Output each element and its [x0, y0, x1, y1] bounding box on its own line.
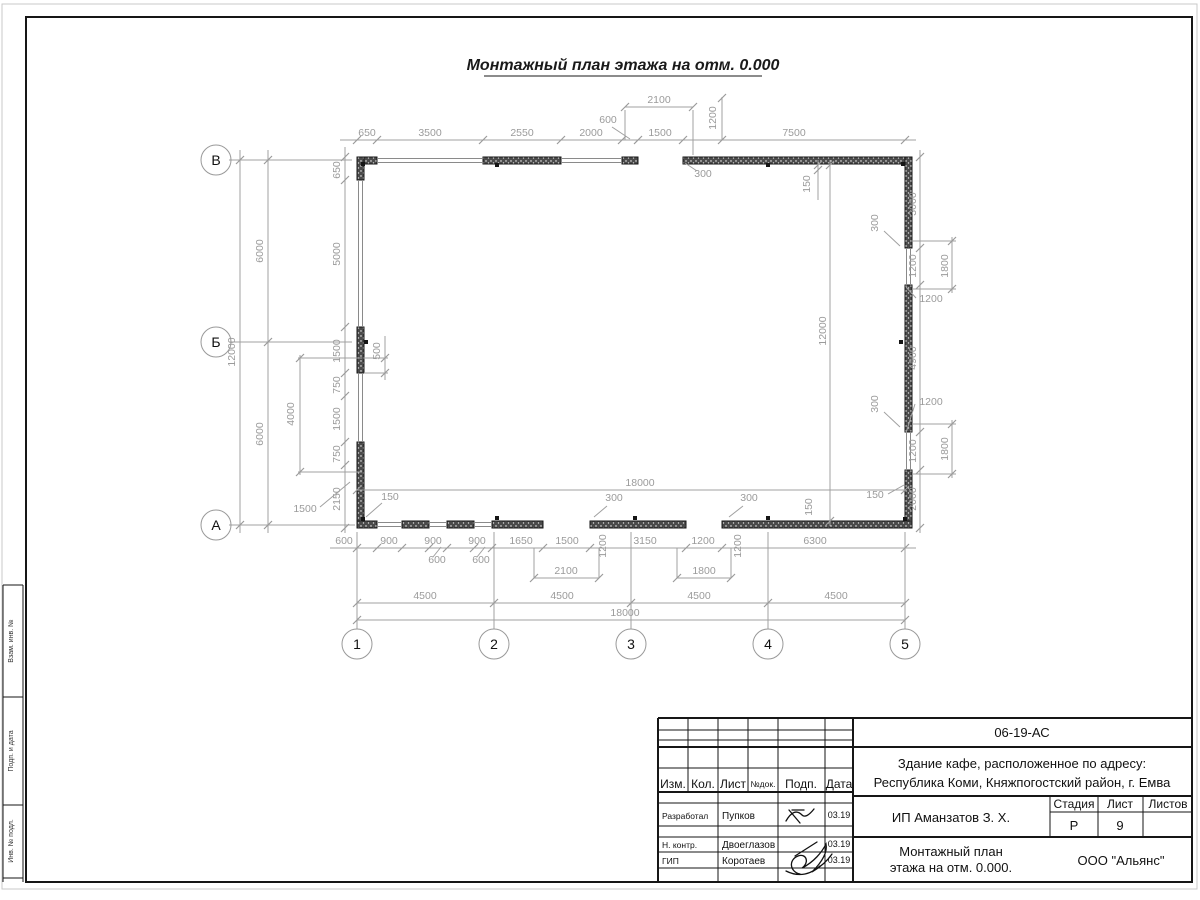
- dimension-label: 1800: [692, 565, 716, 577]
- dimension-label: 7500: [782, 127, 806, 139]
- dimension-label: 1200: [597, 534, 609, 558]
- dimension-label: 500: [371, 342, 383, 360]
- name-gip: Коротаев: [722, 856, 765, 867]
- project-name-line1: Здание кафе, расположенное по адресу:: [898, 756, 1146, 771]
- dimension-label: 900: [380, 535, 398, 547]
- dimension-label: 3000: [907, 192, 919, 216]
- signature-developer: [786, 809, 814, 823]
- stage-label: Стадия: [1054, 797, 1095, 811]
- dimension-label: 1500: [293, 503, 317, 515]
- dimension-label: 900: [468, 535, 486, 547]
- dimension-label: 1200: [907, 254, 919, 278]
- dimension-label: 1650: [509, 535, 533, 547]
- dimension-label: 600: [335, 535, 353, 547]
- date-gip: 03.19: [828, 855, 851, 865]
- dimension-label: 4500: [687, 590, 711, 602]
- side-stamp-label: Инв. № подл.: [8, 819, 15, 863]
- dimension-label: 6300: [803, 535, 827, 547]
- title-block: 06-19-АС Здание кафе, расположенное по а…: [658, 718, 1192, 882]
- axis-label-row: В: [211, 152, 220, 168]
- dimension-label: 1500: [331, 407, 343, 431]
- doc-number: 06-19-АС: [994, 725, 1049, 740]
- col-podp: Подп.: [785, 777, 817, 791]
- drawing-frame: [26, 17, 1192, 882]
- dimension-label: 2000: [907, 487, 919, 511]
- col-kol: Кол.: [691, 777, 715, 791]
- dimension-label: 150: [866, 489, 884, 501]
- dimension-label: 300: [869, 214, 881, 232]
- side-stamp: Взам. инв. № Подп. и дата Инв. № подл.: [3, 585, 23, 882]
- axis-label-col: 5: [901, 636, 909, 652]
- role-gip: ГИП: [662, 856, 679, 866]
- drawing-name-line2: этажа на отм. 0.000.: [890, 860, 1012, 875]
- dimension-label: 650: [358, 127, 376, 139]
- name-developer: Пупков: [722, 811, 755, 822]
- dimension-label: 1200: [732, 534, 744, 558]
- stage-value: Р: [1070, 818, 1079, 833]
- dimension-label: 1200: [907, 439, 919, 463]
- dimension-label: 4000: [285, 402, 297, 426]
- col-ndok: №док.: [751, 779, 776, 789]
- dimension-label: 1500: [555, 535, 579, 547]
- dimension-label: 1500: [331, 339, 343, 363]
- sheets-label: Листов: [1149, 797, 1188, 811]
- sheet-number: 9: [1116, 818, 1123, 833]
- dimension-label: 300: [694, 168, 712, 180]
- dimension-label: 2000: [579, 127, 603, 139]
- dimension-label: 650: [331, 161, 343, 179]
- dimension-label: 750: [331, 376, 343, 394]
- axis-label-col: 2: [490, 636, 498, 652]
- drawing-name-line1: Монтажный план: [899, 844, 1003, 859]
- role-developer: Разработал: [662, 811, 708, 821]
- dimension-label: 2100: [554, 565, 578, 577]
- project-name-line2: Республика Коми, Княжпогостский район, г…: [874, 775, 1171, 790]
- dimension-label: 6000: [254, 422, 266, 446]
- dimension-label: 5000: [331, 242, 343, 266]
- dimension-label: 2550: [510, 127, 534, 139]
- axis-label-row: А: [211, 517, 221, 533]
- dimension-label: 300: [869, 395, 881, 413]
- dimension-label: 900: [424, 535, 442, 547]
- date-ncontrol: 03.19: [828, 839, 851, 849]
- col-data: Дата: [826, 777, 853, 791]
- dimension-label: 600: [599, 114, 617, 126]
- dimension-label: 12000: [817, 316, 829, 345]
- client-name: ИП Аманзатов З. Х.: [892, 810, 1010, 825]
- name-ncontrol: Двоеглазов: [722, 840, 775, 851]
- col-list: Лист: [720, 777, 747, 791]
- dimension-labels: 6503500255020001500750021006001200300150…: [226, 94, 951, 619]
- col-izm: Изм.: [660, 777, 686, 791]
- dimension-label: 2150: [331, 487, 343, 511]
- axis-label-col: 1: [353, 636, 361, 652]
- axis-label-col: 4: [764, 636, 772, 652]
- role-ncontrol: Н. контр.: [662, 840, 697, 850]
- dimension-label: 150: [803, 498, 815, 516]
- dimension-label: 150: [381, 491, 399, 503]
- dimension-label: 1500: [648, 127, 672, 139]
- dimension-label: 750: [331, 445, 343, 463]
- dimension-label: 3150: [633, 535, 657, 547]
- axis-label-col: 3: [627, 636, 635, 652]
- dimension-label: 300: [605, 492, 623, 504]
- date-developer: 03.19: [828, 810, 851, 820]
- dimension-label: 18000: [610, 607, 639, 619]
- sheet-title: Монтажный план этажа на отм. 0.000: [467, 57, 780, 74]
- dimension-label: 300: [740, 492, 758, 504]
- dimension-label: 4500: [824, 590, 848, 602]
- axis-markers-cols: 1 2 3 4 5: [342, 629, 920, 659]
- dimension-label: 1200: [919, 396, 943, 408]
- company-name: ООО "Альянс": [1078, 853, 1165, 868]
- axis-label-row: Б: [211, 334, 220, 350]
- side-stamp-label: Подп. и дата: [8, 730, 15, 771]
- dimension-label: 2100: [647, 94, 671, 106]
- dimension-label: 3500: [418, 127, 442, 139]
- dimension-label: 18000: [625, 477, 654, 489]
- dimension-label: 6000: [254, 239, 266, 263]
- dimension-label: 4500: [550, 590, 574, 602]
- dimension-label: 1200: [919, 293, 943, 305]
- dimension-label: 4500: [413, 590, 437, 602]
- dimension-label: 150: [801, 175, 813, 193]
- floor-plan-svg: Взам. инв. № Подп. и дата Инв. № подл. М…: [0, 0, 1200, 900]
- dimension-label: 1200: [707, 106, 719, 130]
- dimension-label: 600: [428, 554, 446, 566]
- dimension-label: 4900: [907, 346, 919, 370]
- side-stamp-label: Взам. инв. №: [8, 619, 15, 662]
- dimension-label: 1800: [939, 437, 951, 461]
- dimension-label: 1200: [691, 535, 715, 547]
- dimension-label: 1800: [939, 254, 951, 278]
- drawing-sheet: Взам. инв. № Подп. и дата Инв. № подл. М…: [0, 0, 1200, 900]
- dimension-label: 600: [472, 554, 490, 566]
- sheet-label: Лист: [1107, 797, 1134, 811]
